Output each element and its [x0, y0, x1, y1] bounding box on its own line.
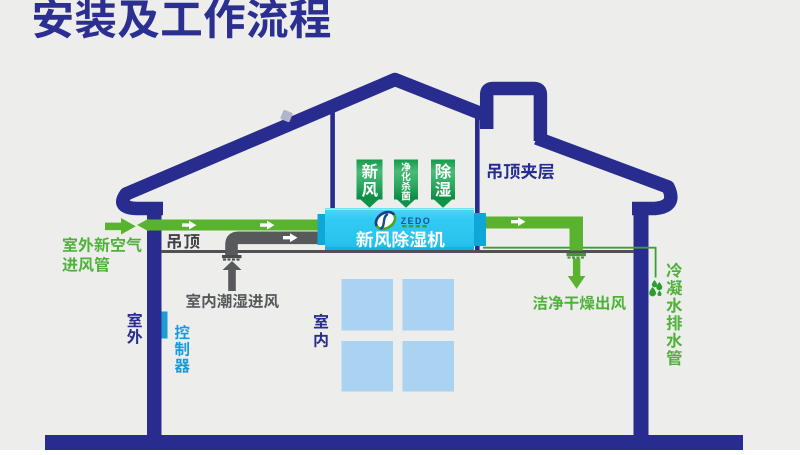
- svg-text:ZEDO: ZEDO: [401, 216, 431, 226]
